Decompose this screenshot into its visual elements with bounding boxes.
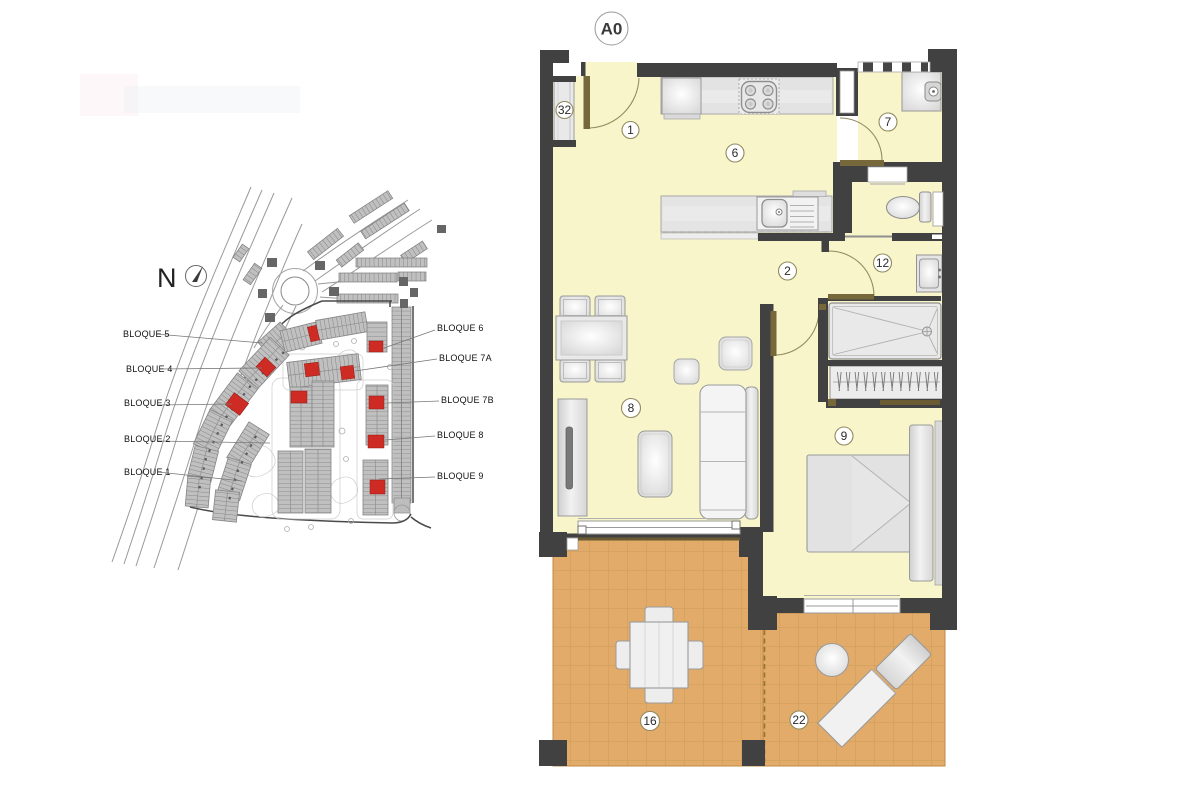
svg-text:BLOQUE 2: BLOQUE 2 [124, 434, 171, 444]
svg-text:BLOQUE 8: BLOQUE 8 [437, 430, 484, 440]
svg-text:22: 22 [792, 713, 806, 727]
svg-text:BLOQUE 3: BLOQUE 3 [124, 398, 171, 408]
svg-text:BLOQUE 6: BLOQUE 6 [437, 323, 484, 333]
svg-text:16: 16 [643, 714, 657, 728]
svg-text:2: 2 [784, 264, 791, 278]
svg-text:BLOQUE 5: BLOQUE 5 [123, 329, 170, 339]
svg-text:BLOQUE 7B: BLOQUE 7B [441, 395, 494, 405]
svg-text:N: N [157, 263, 177, 293]
svg-text:6: 6 [732, 146, 739, 160]
svg-text:9: 9 [841, 429, 848, 443]
svg-text:BLOQUE 1: BLOQUE 1 [124, 467, 171, 477]
svg-text:BLOQUE 4: BLOQUE 4 [126, 364, 173, 374]
svg-text:12: 12 [876, 256, 890, 270]
svg-text:1: 1 [627, 123, 634, 137]
svg-text:32: 32 [558, 103, 572, 117]
svg-text:A0: A0 [601, 20, 623, 39]
svg-text:BLOQUE 7A: BLOQUE 7A [439, 353, 492, 363]
svg-text:BLOQUE 9: BLOQUE 9 [437, 471, 484, 481]
svg-text:8: 8 [628, 401, 635, 415]
svg-text:7: 7 [885, 115, 892, 129]
